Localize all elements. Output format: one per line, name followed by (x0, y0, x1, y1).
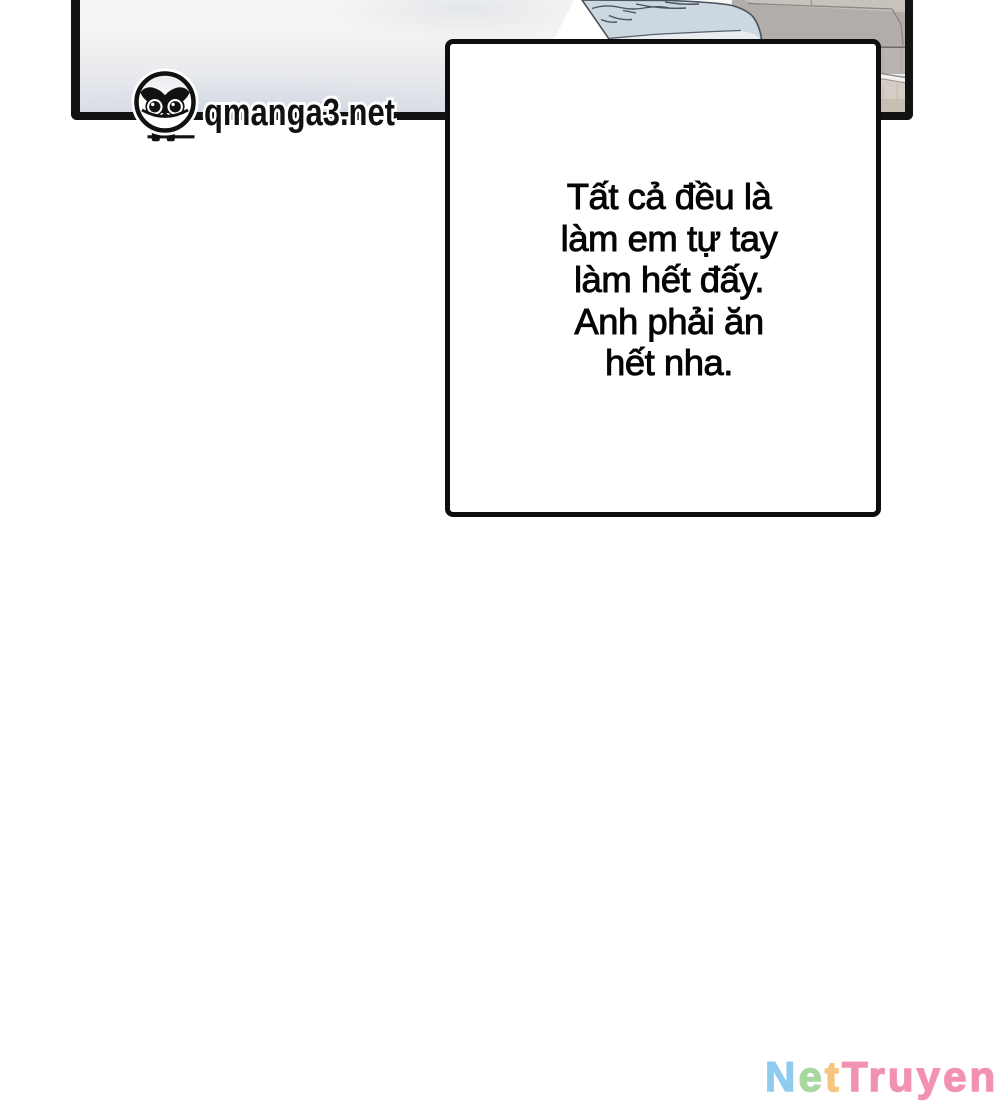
svg-text:qmanga3.net: qmanga3.net (204, 92, 395, 134)
